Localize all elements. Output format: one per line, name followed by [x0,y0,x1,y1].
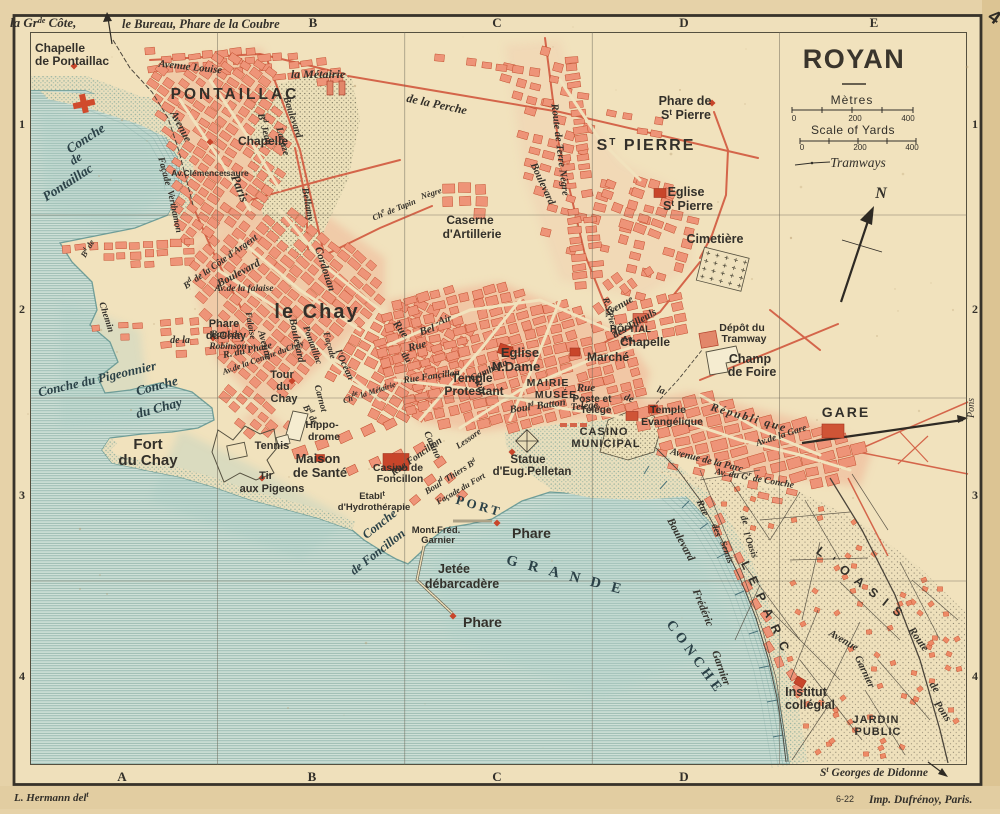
svg-text:Rue: Rue [576,382,595,394]
svg-text:JARDIN: JARDIN [853,714,900,726]
svg-text:Phare: Phare [463,614,502,630]
svg-text:Garnier: Garnier [421,535,455,546]
svg-text:Maison: Maison [296,451,341,466]
svg-text:200: 200 [853,143,867,152]
svg-text:la Métairie: la Métairie [291,67,346,81]
svg-text:Phare: Phare [209,318,240,330]
svg-text:Mètres: Mètres [831,93,874,107]
svg-text:Pons: Pons [966,398,977,419]
svg-text:Tramways: Tramways [830,155,886,170]
svg-text:CASINO: CASINO [580,426,629,438]
svg-text:Tir: Tir [259,470,274,482]
svg-text:MUNICIPAL: MUNICIPAL [571,438,640,450]
svg-text:4: 4 [19,669,25,683]
svg-text:Caserne: Caserne [446,213,494,227]
svg-text:de Foire: de Foire [728,365,777,379]
svg-text:Tour: Tour [270,369,294,381]
svg-text:Tennis: Tennis [255,440,290,452]
svg-text:MAIRIE: MAIRIE [527,377,570,389]
svg-text:Tramway: Tramway [722,333,767,345]
svg-text:Eglise: Eglise [501,345,539,360]
svg-text:B: B [309,15,318,30]
svg-text:3: 3 [972,488,978,502]
svg-text:Foncillon: Foncillon [377,473,424,485]
svg-text:Statue: Statue [510,454,545,466]
svg-text:d'Hydrothérapie: d'Hydrothérapie [338,502,410,513]
svg-text:3: 3 [19,488,25,502]
svg-text:Hippo-: Hippo- [305,419,339,431]
svg-text:C: C [492,15,501,30]
svg-text:débarcadère: débarcadère [425,577,499,591]
svg-text:Temple: Temple [650,404,686,416]
svg-text:du: du [276,381,289,393]
svg-text:6-22: 6-22 [836,794,854,804]
svg-text:N: N [874,185,888,202]
svg-text:400: 400 [901,114,915,123]
svg-text:Scale of Yards: Scale of Yards [811,123,895,137]
svg-text:d'Eug.Pelletan: d'Eug.Pelletan [493,466,572,478]
svg-text:drome: drome [308,431,340,443]
svg-text:D: D [679,15,688,30]
svg-text:0: 0 [800,143,805,152]
svg-text:B: B [308,769,317,784]
svg-text:Protestant: Protestant [444,384,503,398]
svg-text:200: 200 [848,114,862,123]
svg-text:Phare: Phare [512,525,551,541]
svg-text:St Pierre: St Pierre [661,108,711,123]
svg-text:St Pierre: St Pierre [663,199,713,214]
svg-text:Institut: Institut [785,685,827,699]
svg-text:de la: de la [170,335,190,346]
svg-text:PUBLIC: PUBLIC [855,726,902,738]
svg-text:4: 4 [972,669,978,683]
svg-text:St Georges de Didonne: St Georges de Didonne [820,765,928,780]
svg-text:E: E [870,15,879,30]
svg-text:du Chay: du Chay [118,452,178,469]
svg-text:D: D [679,769,688,784]
svg-text:1: 1 [19,117,25,131]
svg-text:Marché: Marché [587,350,629,364]
svg-text:duChay: duChay [206,330,247,342]
svg-text:1: 1 [972,117,978,131]
svg-text:Cimetière: Cimetière [687,232,744,246]
svg-text:Etablt: Etablt [359,491,385,503]
svg-text:Evangélique: Evangélique [641,416,703,428]
svg-text:L. Hermann delt: L. Hermann delt [13,790,89,805]
svg-text:2: 2 [19,302,25,316]
svg-text:Fort: Fort [133,436,162,453]
svg-text:Temple: Temple [451,371,492,385]
svg-text:Chay: Chay [271,393,299,405]
svg-text:0: 0 [792,114,797,123]
svg-text:le Bureau, Phare de la Coubre: le Bureau, Phare de la Coubre [122,17,280,31]
svg-text:Av.de la falaise: Av.de la falaise [214,284,275,294]
svg-text:C: C [492,769,501,784]
svg-text:GARE: GARE [822,404,870,420]
svg-text:Champ: Champ [729,352,772,366]
svg-text:Phare de: Phare de [659,94,712,108]
svg-text:2: 2 [972,302,978,316]
svg-text:Jetée: Jetée [438,562,470,576]
svg-text:collégial: collégial [785,698,835,712]
svg-text:de Santé: de Santé [293,465,347,480]
svg-text:Chapelle: Chapelle [35,41,85,55]
svg-text:de Pontaillac: de Pontaillac [35,54,109,68]
svg-text:Eglise: Eglise [668,185,705,199]
svg-text:aux Pigeons: aux Pigeons [240,483,305,495]
svg-text:A: A [117,769,127,784]
svg-text:PONTAILLAC: PONTAILLAC [171,86,300,103]
svg-text:Imp. Dufrénoy, Paris.: Imp. Dufrénoy, Paris. [868,794,972,806]
svg-text:ROYAN: ROYAN [803,44,906,74]
svg-text:400: 400 [905,143,919,152]
svg-text:d'Artillerie: d'Artillerie [443,227,502,241]
svg-text:N.Dame: N.Dame [492,359,540,374]
